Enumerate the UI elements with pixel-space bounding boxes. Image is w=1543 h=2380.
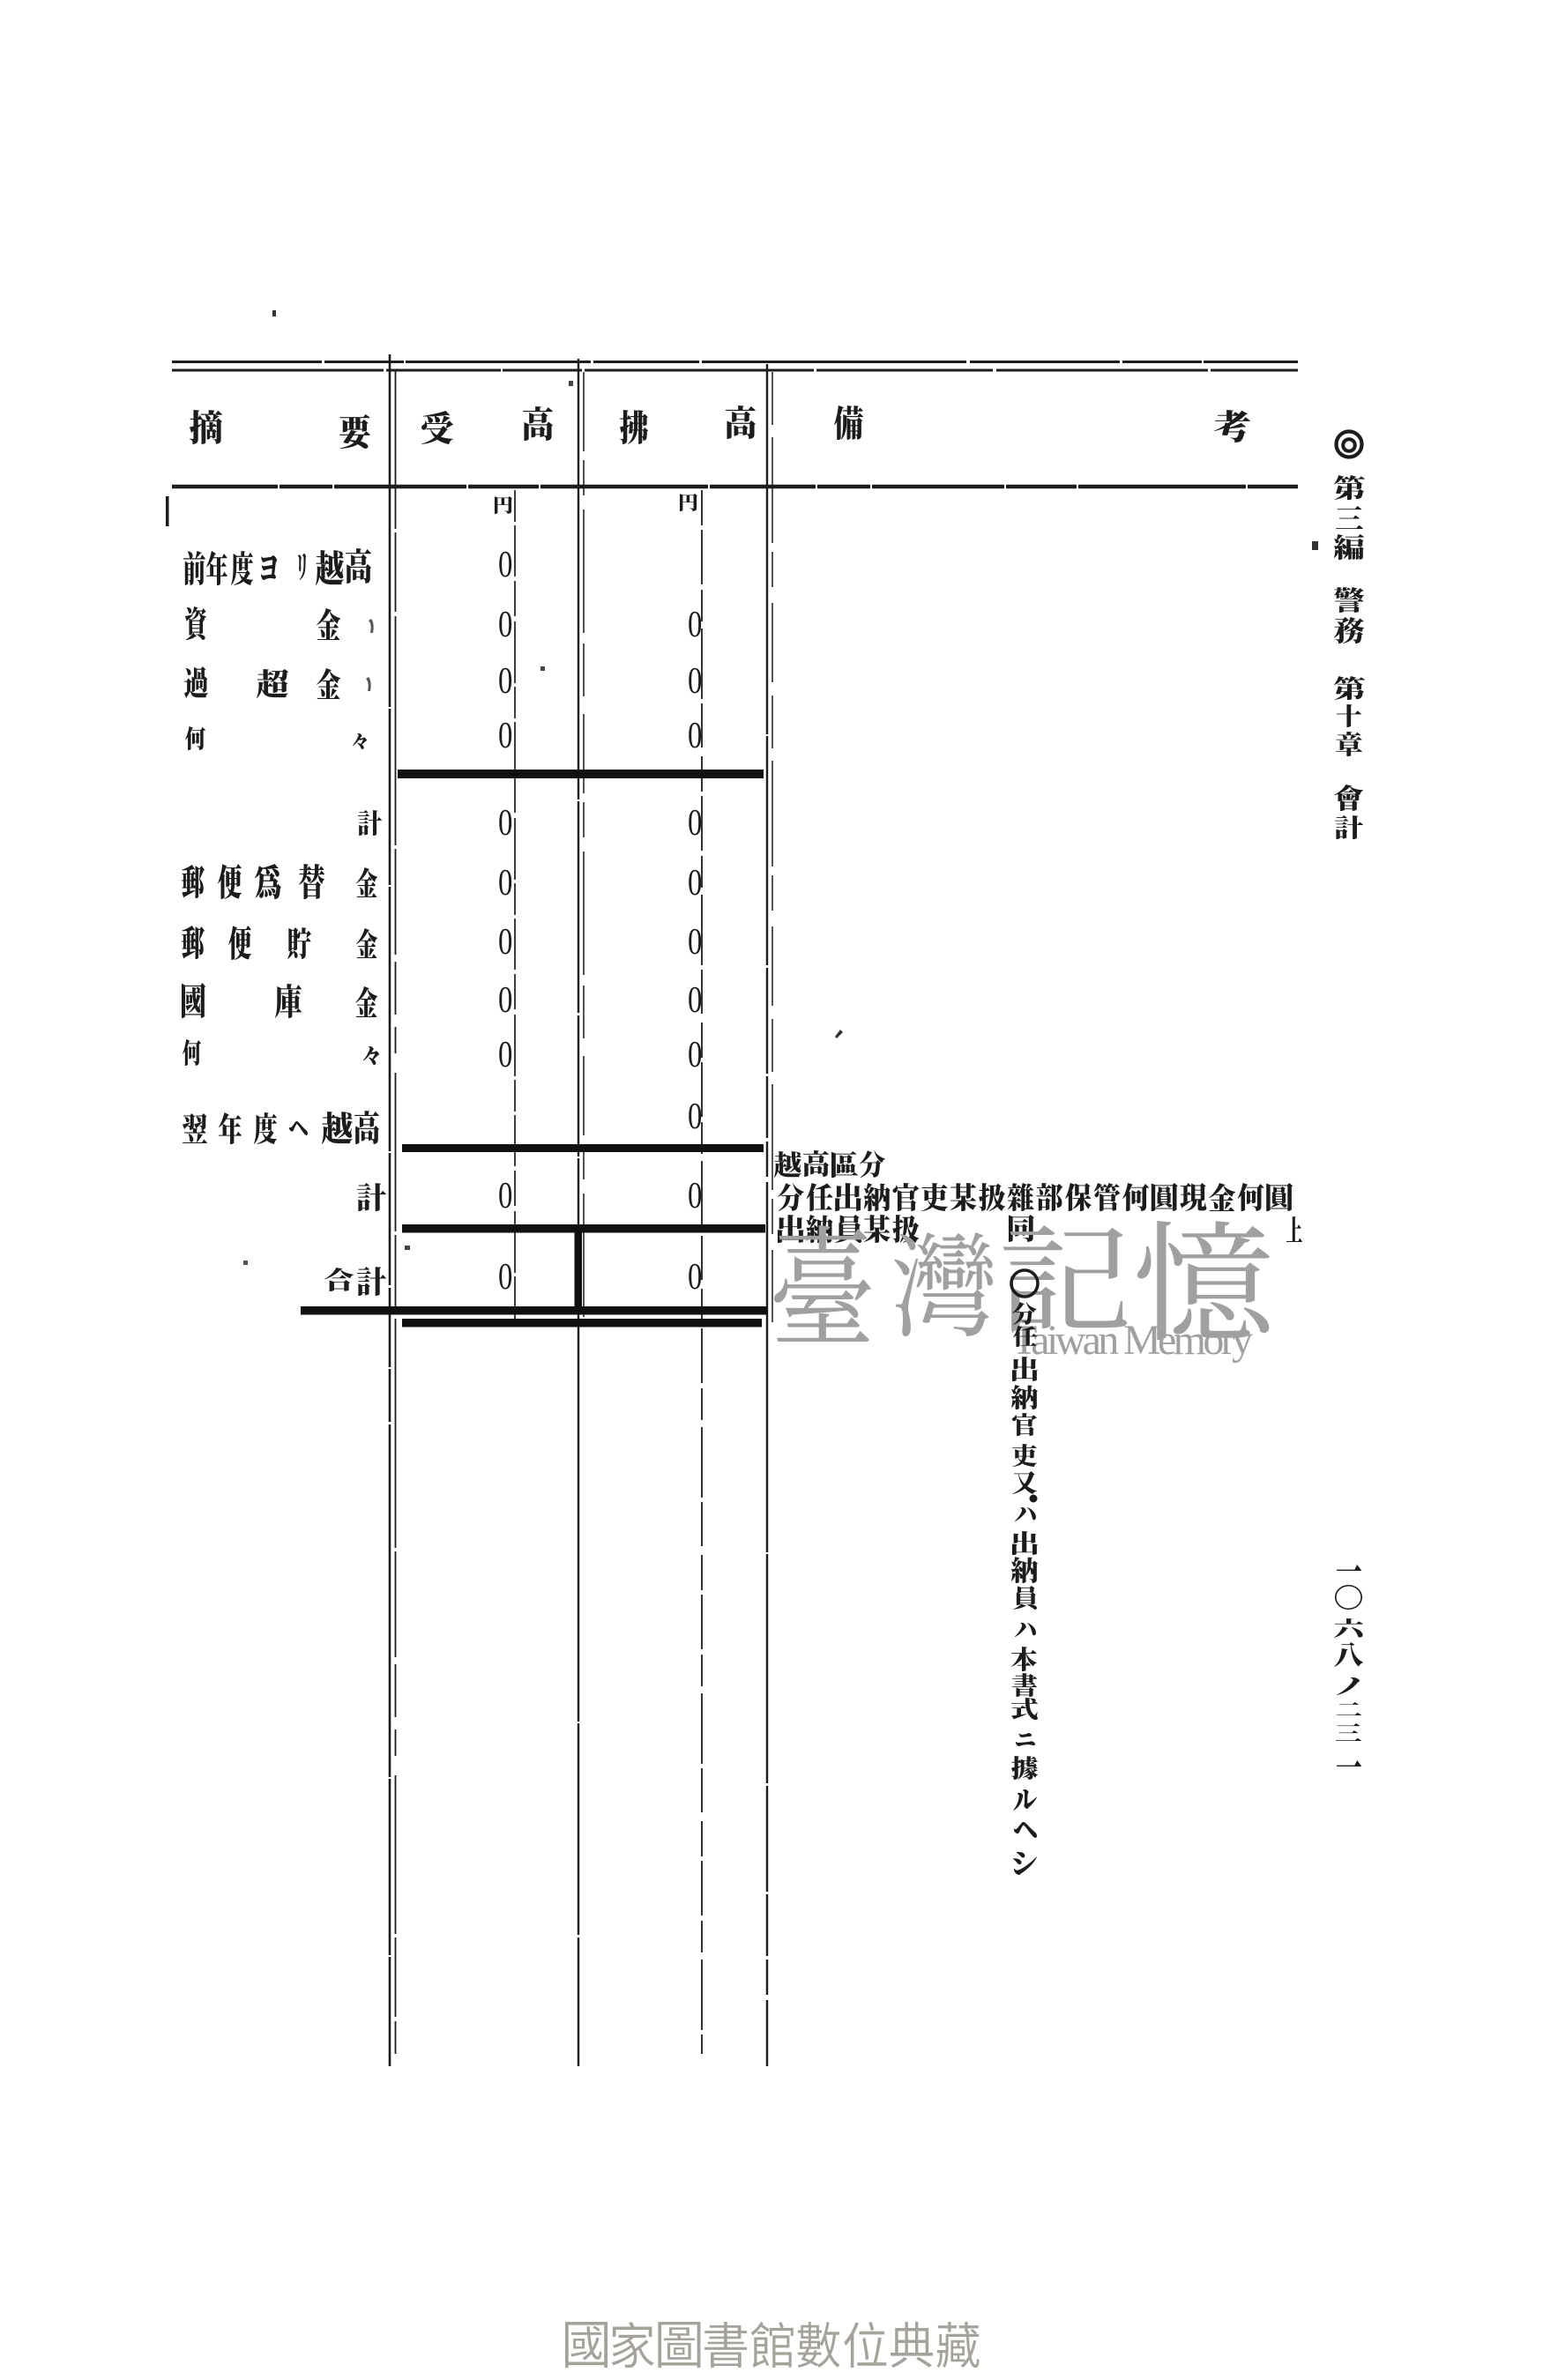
svg-text:0: 0 xyxy=(498,604,512,645)
svg-text:0: 0 xyxy=(688,604,702,645)
svg-text:0: 0 xyxy=(688,802,702,844)
svg-text:0: 0 xyxy=(498,862,512,904)
svg-text:0: 0 xyxy=(688,921,702,963)
svg-text:0: 0 xyxy=(498,1256,512,1298)
svg-text:0: 0 xyxy=(498,544,512,585)
svg-text:Taiwan Memory: Taiwan Memory xyxy=(1011,1317,1253,1364)
svg-text:0: 0 xyxy=(688,1034,702,1075)
svg-text:0: 0 xyxy=(688,1256,702,1298)
svg-text:0: 0 xyxy=(688,1175,702,1216)
svg-text:0: 0 xyxy=(688,862,702,904)
svg-text:0: 0 xyxy=(498,1175,512,1216)
svg-text:0: 0 xyxy=(688,979,702,1021)
svg-text:0: 0 xyxy=(688,715,702,756)
svg-text:0: 0 xyxy=(688,660,702,702)
svg-text:0: 0 xyxy=(498,802,512,844)
svg-text:0: 0 xyxy=(498,660,512,702)
svg-text:0: 0 xyxy=(498,921,512,963)
svg-text:0: 0 xyxy=(688,1096,702,1137)
svg-text:0: 0 xyxy=(498,1034,512,1075)
svg-text:0: 0 xyxy=(498,979,512,1021)
svg-text:0: 0 xyxy=(498,715,512,756)
